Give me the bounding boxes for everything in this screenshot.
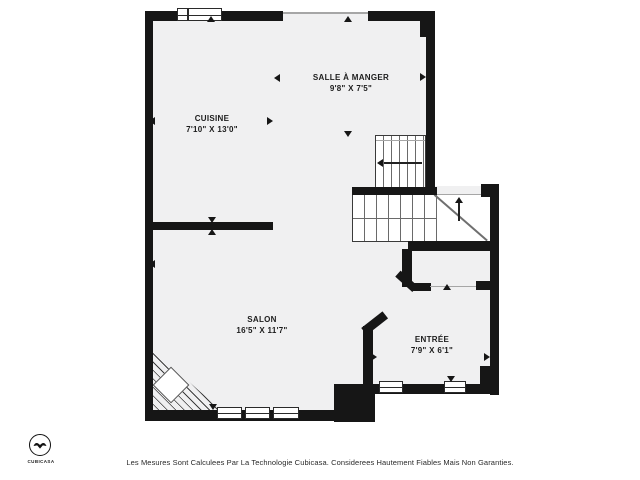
staircase-lower bbox=[352, 195, 437, 242]
room-label-salle-a-manger: SALLE À MANGER 9'8" X 7'5" bbox=[271, 72, 431, 94]
marker-icon bbox=[406, 259, 412, 267]
staircase-lower-arrow-icon bbox=[455, 197, 463, 203]
bird-icon bbox=[33, 440, 47, 450]
room-dims: 7'9" X 6'1" bbox=[372, 345, 492, 356]
marker-icon bbox=[149, 260, 155, 268]
window-entrance-1 bbox=[379, 381, 403, 393]
wall-hall-divider-right bbox=[476, 281, 491, 290]
marker-icon bbox=[447, 376, 455, 382]
hall-divider-threshold bbox=[430, 286, 476, 287]
room-name: CUISINE bbox=[142, 113, 282, 124]
marker-icon bbox=[207, 16, 215, 22]
wall-east-dining bbox=[426, 11, 435, 188]
wall-hall-divider-left bbox=[411, 283, 431, 291]
staircase-upper-arrow-shaft bbox=[384, 162, 422, 164]
room-label-entree: ENTRÉE 7'9" X 6'1" bbox=[372, 334, 492, 356]
room-dims: 9'8" X 7'5" bbox=[271, 83, 431, 94]
marker-icon bbox=[208, 229, 216, 235]
window-salon-3 bbox=[273, 407, 299, 419]
staircase-upper-landing-line bbox=[376, 140, 425, 141]
window-entrance-2 bbox=[444, 381, 466, 393]
wall-right bbox=[490, 184, 499, 395]
wall-east-dining-notch bbox=[420, 11, 428, 37]
window-top-pane-1 bbox=[177, 8, 188, 21]
room-dims: 16'5" X 11'7" bbox=[192, 325, 332, 336]
window-top-pane-2 bbox=[188, 8, 222, 21]
marker-icon bbox=[344, 131, 352, 137]
floorplan-canvas: CUISINE 7'10" X 13'0" SALLE À MANGER 9'8… bbox=[0, 0, 640, 480]
wall-entrance-north bbox=[408, 241, 499, 251]
marker-icon bbox=[209, 404, 217, 410]
room-label-cuisine: CUISINE 7'10" X 13'0" bbox=[142, 113, 282, 135]
wall-stairs-middle bbox=[352, 187, 437, 195]
window-salon-2 bbox=[245, 407, 270, 419]
staircase-lower-arrow-shaft bbox=[458, 203, 460, 221]
wall-left bbox=[145, 11, 153, 421]
marker-icon bbox=[344, 16, 352, 22]
marker-icon bbox=[443, 284, 451, 290]
room-name: ENTRÉE bbox=[372, 334, 492, 345]
disclaimer-text: Les Mesures Sont Calculees Par La Techno… bbox=[0, 458, 640, 467]
room-name: SALON bbox=[192, 314, 332, 325]
cubicasa-logo bbox=[29, 434, 51, 456]
window-salon-1 bbox=[217, 407, 242, 419]
wall-top-opening-line bbox=[283, 12, 368, 14]
room-label-salon: SALON 16'5" X 11'7" bbox=[192, 314, 332, 336]
room-dims: 7'10" X 13'0" bbox=[142, 124, 282, 135]
marker-icon bbox=[208, 217, 216, 223]
room-name: SALLE À MANGER bbox=[271, 72, 431, 83]
staircase-upper-arrow-icon bbox=[377, 159, 383, 167]
